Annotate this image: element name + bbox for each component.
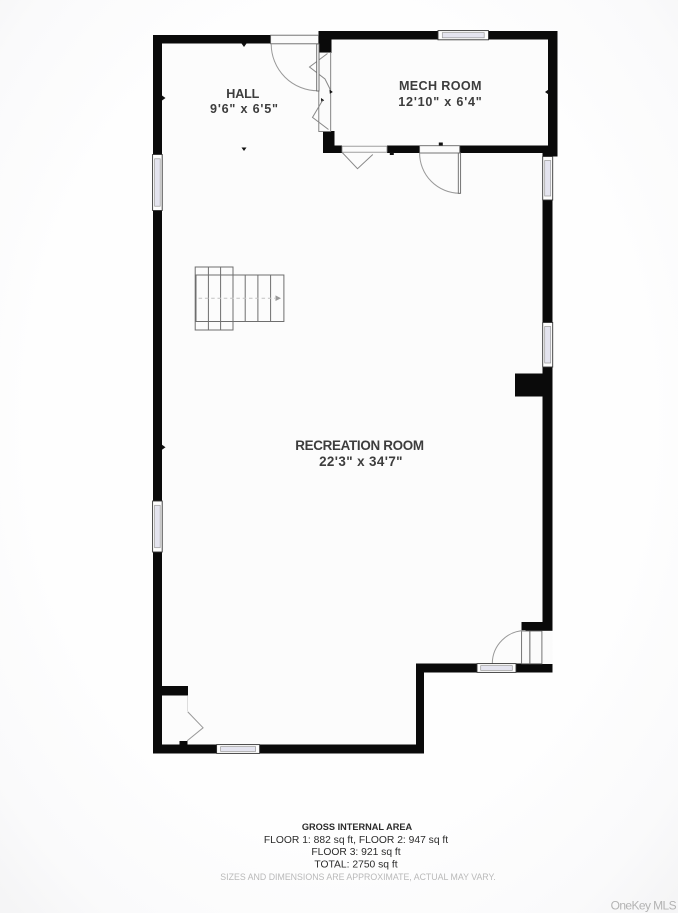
svg-text:9'6" x 6'5": 9'6" x 6'5" xyxy=(210,102,279,116)
svg-text:RECREATION ROOM: RECREATION ROOM xyxy=(295,438,424,453)
svg-text:HALL: HALL xyxy=(226,87,259,101)
svg-text:12'10" x 6'4": 12'10" x 6'4" xyxy=(398,95,482,109)
svg-text:GROSS INTERNAL AREA: GROSS INTERNAL AREA xyxy=(302,822,413,832)
svg-text:22'3" x 34'7": 22'3" x 34'7" xyxy=(319,454,403,469)
svg-text:MECH ROOM: MECH ROOM xyxy=(399,79,482,93)
svg-text:FLOOR 3: 921 sq ft: FLOOR 3: 921 sq ft xyxy=(311,847,400,858)
svg-text:TOTAL: 2750 sq ft: TOTAL: 2750 sq ft xyxy=(314,860,397,871)
svg-text:FLOOR 1: 882 sq ft, FLOOR 2: 9: FLOOR 1: 882 sq ft, FLOOR 2: 947 sq ft xyxy=(264,835,448,846)
svg-text:OneKey MLS: OneKey MLS xyxy=(611,899,677,913)
svg-text:SIZES AND DIMENSIONS ARE APPRO: SIZES AND DIMENSIONS ARE APPROXIMATE, AC… xyxy=(220,872,495,882)
